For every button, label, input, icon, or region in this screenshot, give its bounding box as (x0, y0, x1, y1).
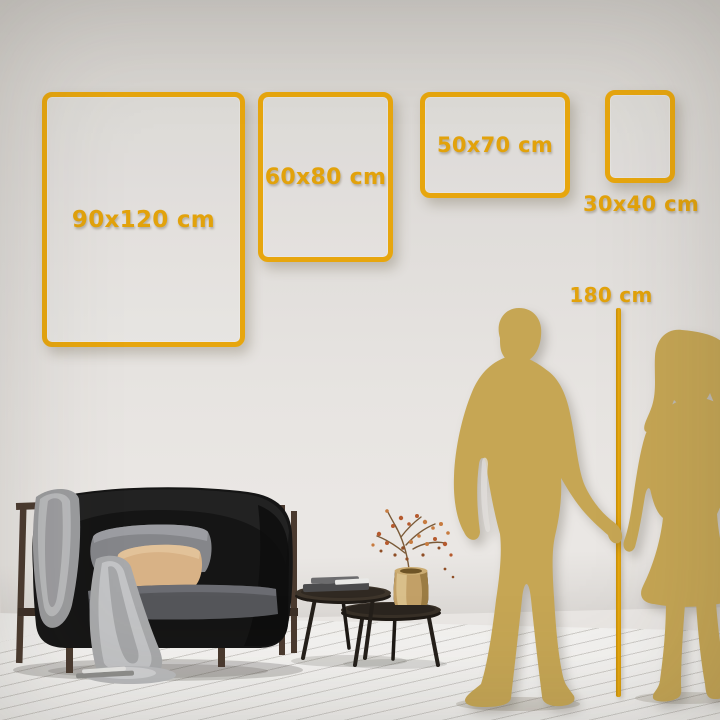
table-small (295, 585, 391, 658)
frame-90x120: 90x120 cm (42, 92, 245, 347)
frame-90x120-label: 90x120 cm (72, 207, 215, 233)
table-large (341, 602, 441, 665)
table-books (303, 576, 369, 592)
couple-silhouettes (440, 300, 720, 720)
frame-50x70: 50x70 cm (420, 92, 570, 198)
frame-60x80-label: 60x80 cm (265, 165, 386, 190)
woman-silhouette (623, 330, 720, 702)
frame-50x70-label: 50x70 cm (437, 133, 553, 157)
man-silhouette (454, 308, 622, 707)
black-sofa (8, 475, 308, 690)
frame-60x80: 60x80 cm (258, 92, 393, 262)
frame-30x40 (605, 90, 675, 183)
size-guide-scene: 90x120 cm 60x80 cm 50x70 cm 30x40 cm 180… (0, 0, 720, 720)
nesting-coffee-tables (283, 503, 458, 671)
frame-30x40-label: 30x40 cm (571, 192, 711, 216)
